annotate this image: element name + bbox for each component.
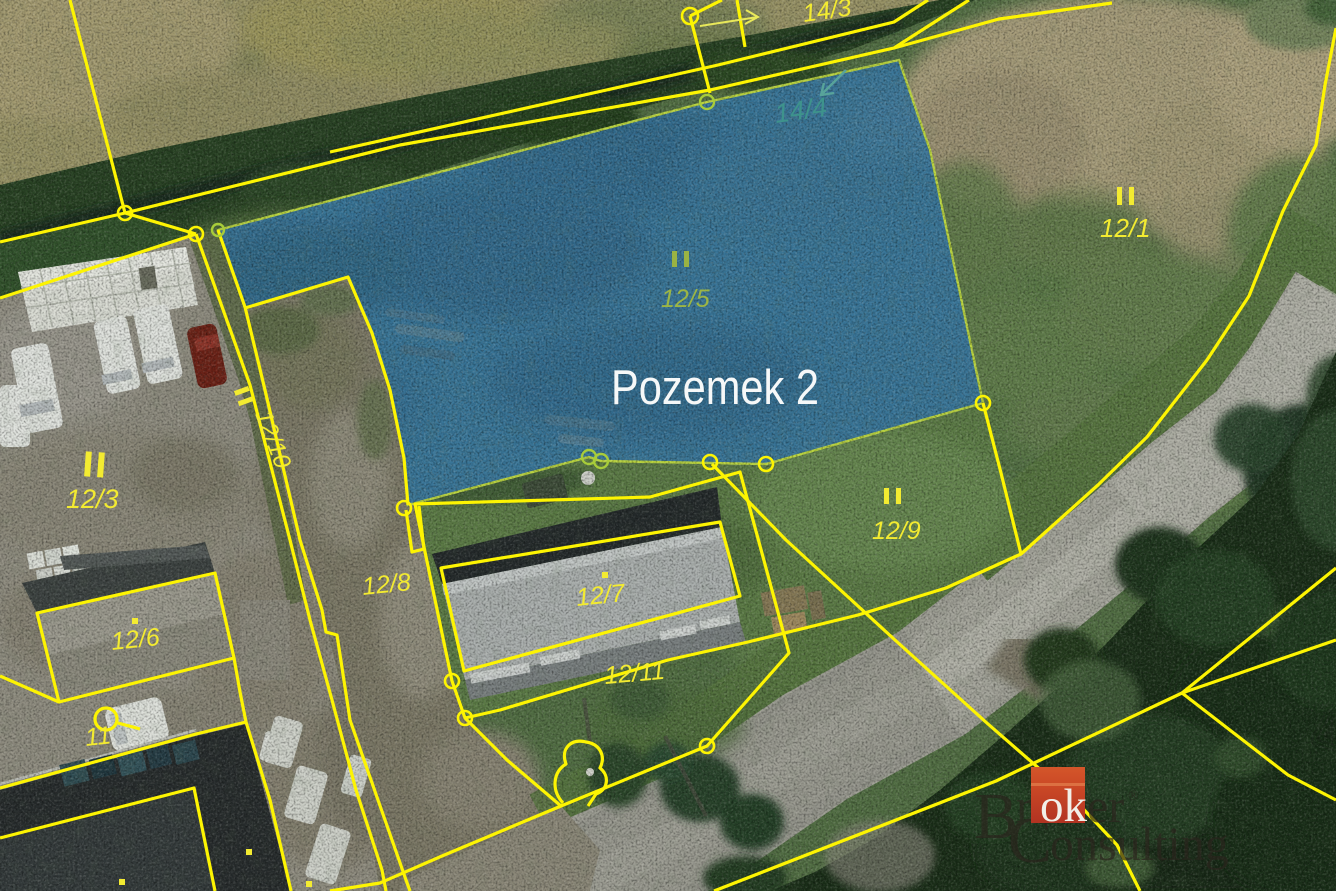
svg-text:11: 11 xyxy=(84,721,113,752)
svg-text:12/11: 12/11 xyxy=(603,657,666,690)
svg-text:12/7: 12/7 xyxy=(575,579,627,612)
svg-text:12/6: 12/6 xyxy=(110,623,161,656)
svg-text:12/9: 12/9 xyxy=(872,517,921,545)
svg-text:ok: ok xyxy=(1040,780,1088,832)
svg-text:12/5: 12/5 xyxy=(661,285,710,313)
svg-text:12/3: 12/3 xyxy=(66,484,119,514)
svg-text:12/1: 12/1 xyxy=(1100,213,1151,243)
svg-text:12/8: 12/8 xyxy=(361,568,412,601)
svg-text:®: ® xyxy=(1128,789,1139,804)
svg-text:Pozemek 2: Pozemek 2 xyxy=(611,361,819,415)
